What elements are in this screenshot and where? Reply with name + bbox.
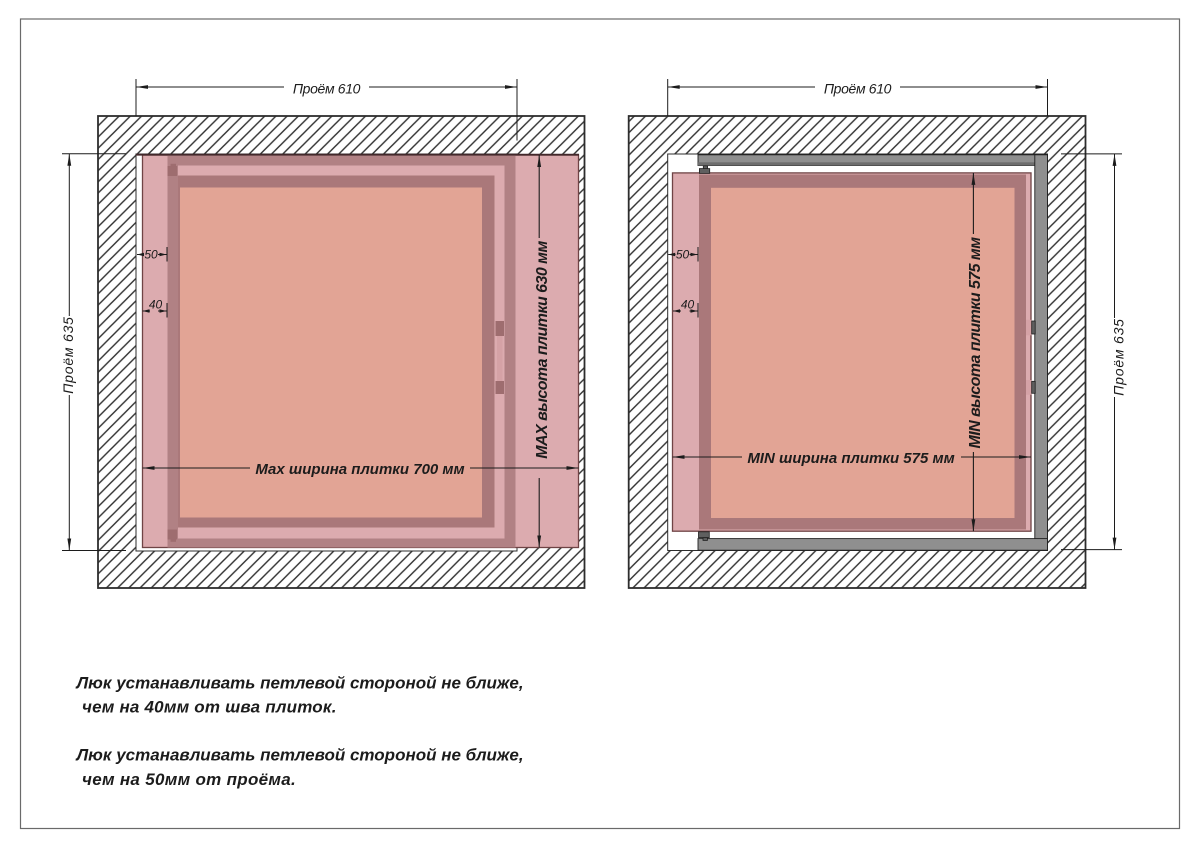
svg-text:40: 40 <box>149 298 163 312</box>
svg-text:чем на 40мм от шва плиток.: чем на 40мм от шва плиток. <box>82 698 337 717</box>
svg-text:чем на 50мм от проёма.: чем на 50мм от проёма. <box>82 770 296 789</box>
svg-text:40: 40 <box>681 298 695 312</box>
svg-text:MIN высота плитки 575 мм: MIN высота плитки 575 мм <box>967 237 984 449</box>
svg-text:MIN ширина плитки 575 мм: MIN ширина плитки 575 мм <box>747 450 954 467</box>
svg-text:Проём 635: Проём 635 <box>1111 318 1127 396</box>
svg-text:Проём 610: Проём 610 <box>824 81 892 97</box>
svg-text:50: 50 <box>676 248 690 262</box>
svg-text:Мах ширина плитки 700 мм: Мах ширина плитки 700 мм <box>255 461 464 478</box>
svg-text:Люк устанавливать петлевой сто: Люк устанавливать петлевой стороной не б… <box>75 746 524 765</box>
svg-text:50: 50 <box>144 248 158 262</box>
svg-text:Проём 635: Проём 635 <box>60 316 76 394</box>
svg-text:МАХ высота плитки 630 мм: МАХ высота плитки 630 мм <box>534 241 551 459</box>
svg-text:Люк устанавливать петлевой сто: Люк устанавливать петлевой стороной не б… <box>75 674 524 693</box>
svg-text:Проём 610: Проём 610 <box>293 81 361 97</box>
